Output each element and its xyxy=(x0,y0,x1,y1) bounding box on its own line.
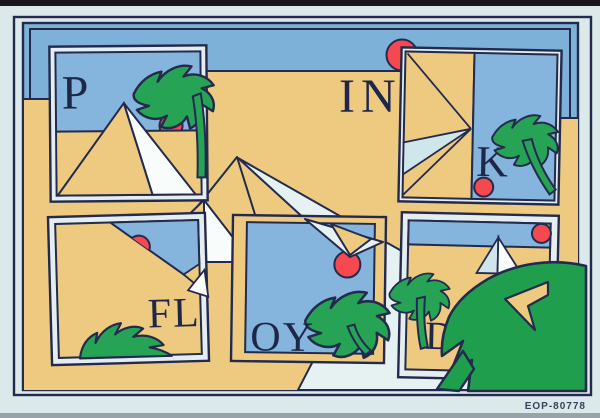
panel-k: K xyxy=(398,47,561,204)
letter-oy: OY xyxy=(250,314,315,361)
panel-p: P xyxy=(49,45,214,201)
letter-in: IN xyxy=(339,70,402,123)
letter-fl: FL xyxy=(147,290,201,337)
panel-d-sky-band xyxy=(408,220,551,247)
letter-p: P xyxy=(62,66,89,119)
panel-k-folded-pyramid xyxy=(402,51,474,198)
photo-edge-top xyxy=(0,0,600,6)
panel-fl: FL xyxy=(48,213,210,365)
panel-k-sun xyxy=(474,177,493,196)
panel-d-sun xyxy=(532,224,551,243)
print-code: EOP-80778 xyxy=(525,401,586,412)
illustrated-card: FL OY D P xyxy=(0,0,600,418)
photo-edge-bottom xyxy=(0,413,600,418)
desert-rebus-illustration: FL OY D P xyxy=(0,0,600,418)
